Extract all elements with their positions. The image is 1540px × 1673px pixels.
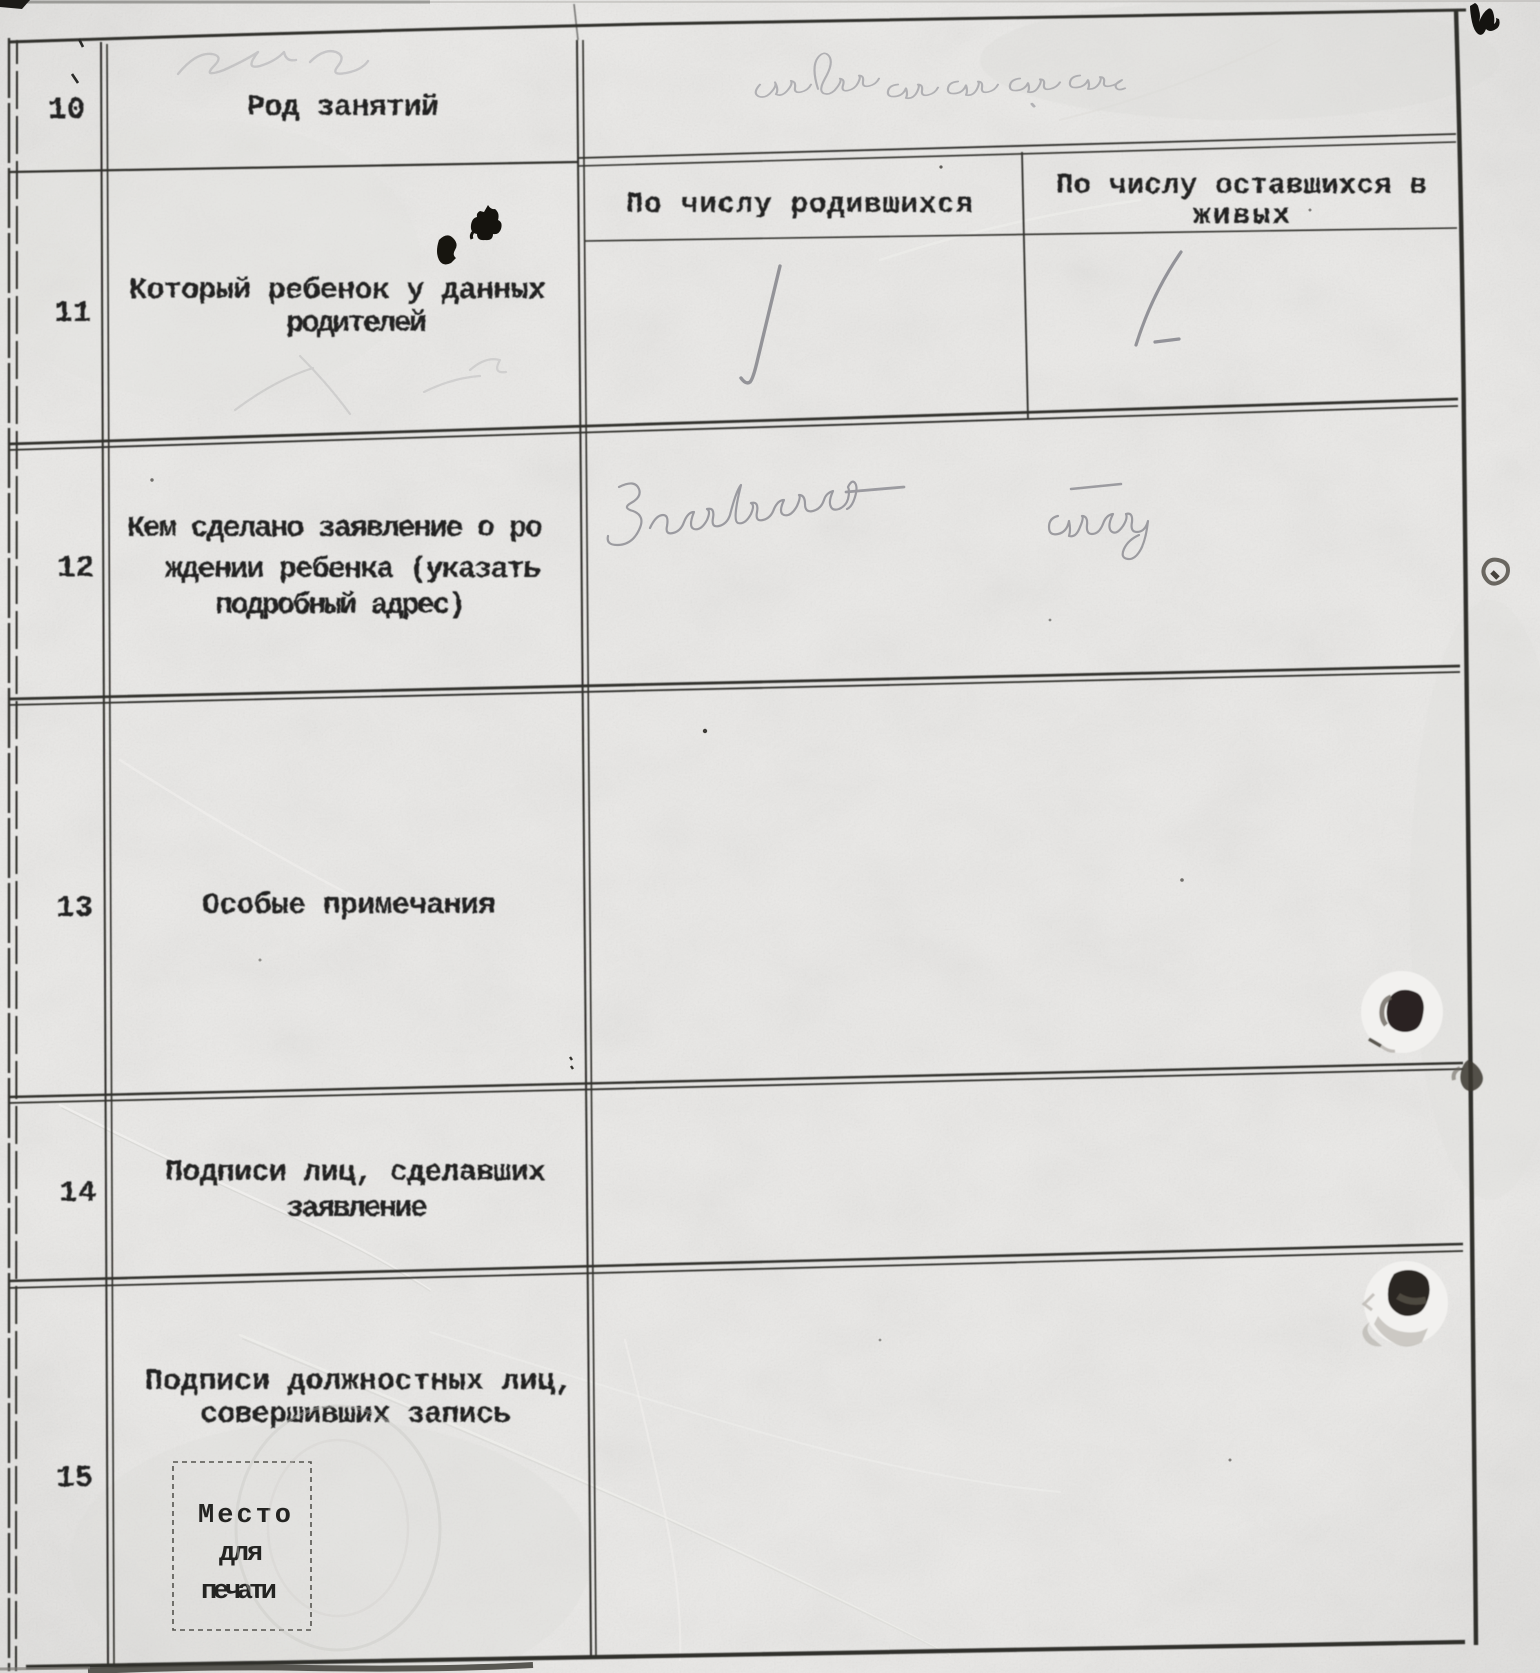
svg-text:Род занятий: Род занятий (247, 91, 439, 125)
svg-text:По числу оставшихся в: По числу оставшихся в (1056, 169, 1427, 202)
svg-text:Место: Место (198, 1501, 291, 1531)
svg-text:Который ребенок у данных: Который ребенок у данных (129, 274, 546, 308)
svg-text:живых: живых (1193, 199, 1290, 232)
svg-text:подробный адрес): подробный адрес) (215, 589, 466, 623)
svg-text:Подписи должностных лиц,: Подписи должностных лиц, (145, 1365, 573, 1399)
svg-text:10: 10 (48, 93, 85, 128)
svg-text:По числу родившихся: По числу родившихся (626, 188, 973, 221)
svg-text:Особые примечания: Особые примечания (202, 889, 496, 923)
svg-text:заявление: заявление (286, 1192, 428, 1226)
svg-text:совершивших запись: совершивших запись (200, 1398, 511, 1432)
svg-text:Кем сделано заявление о ро: Кем сделано заявление о ро (127, 512, 543, 546)
svg-text:14: 14 (59, 1176, 96, 1211)
svg-text:13: 13 (56, 891, 93, 926)
svg-text:15: 15 (56, 1461, 93, 1496)
svg-text:ждении ребенка (указать: ждении ребенка (указать (165, 553, 541, 587)
svg-text:Подписи лиц, сделавших: Подписи лиц, сделавших (165, 1156, 546, 1190)
svg-text:печати: печати (201, 1577, 277, 1607)
svg-text:11: 11 (54, 296, 91, 331)
svg-text:12: 12 (57, 551, 94, 586)
svg-text:родителей: родителей (286, 307, 427, 341)
